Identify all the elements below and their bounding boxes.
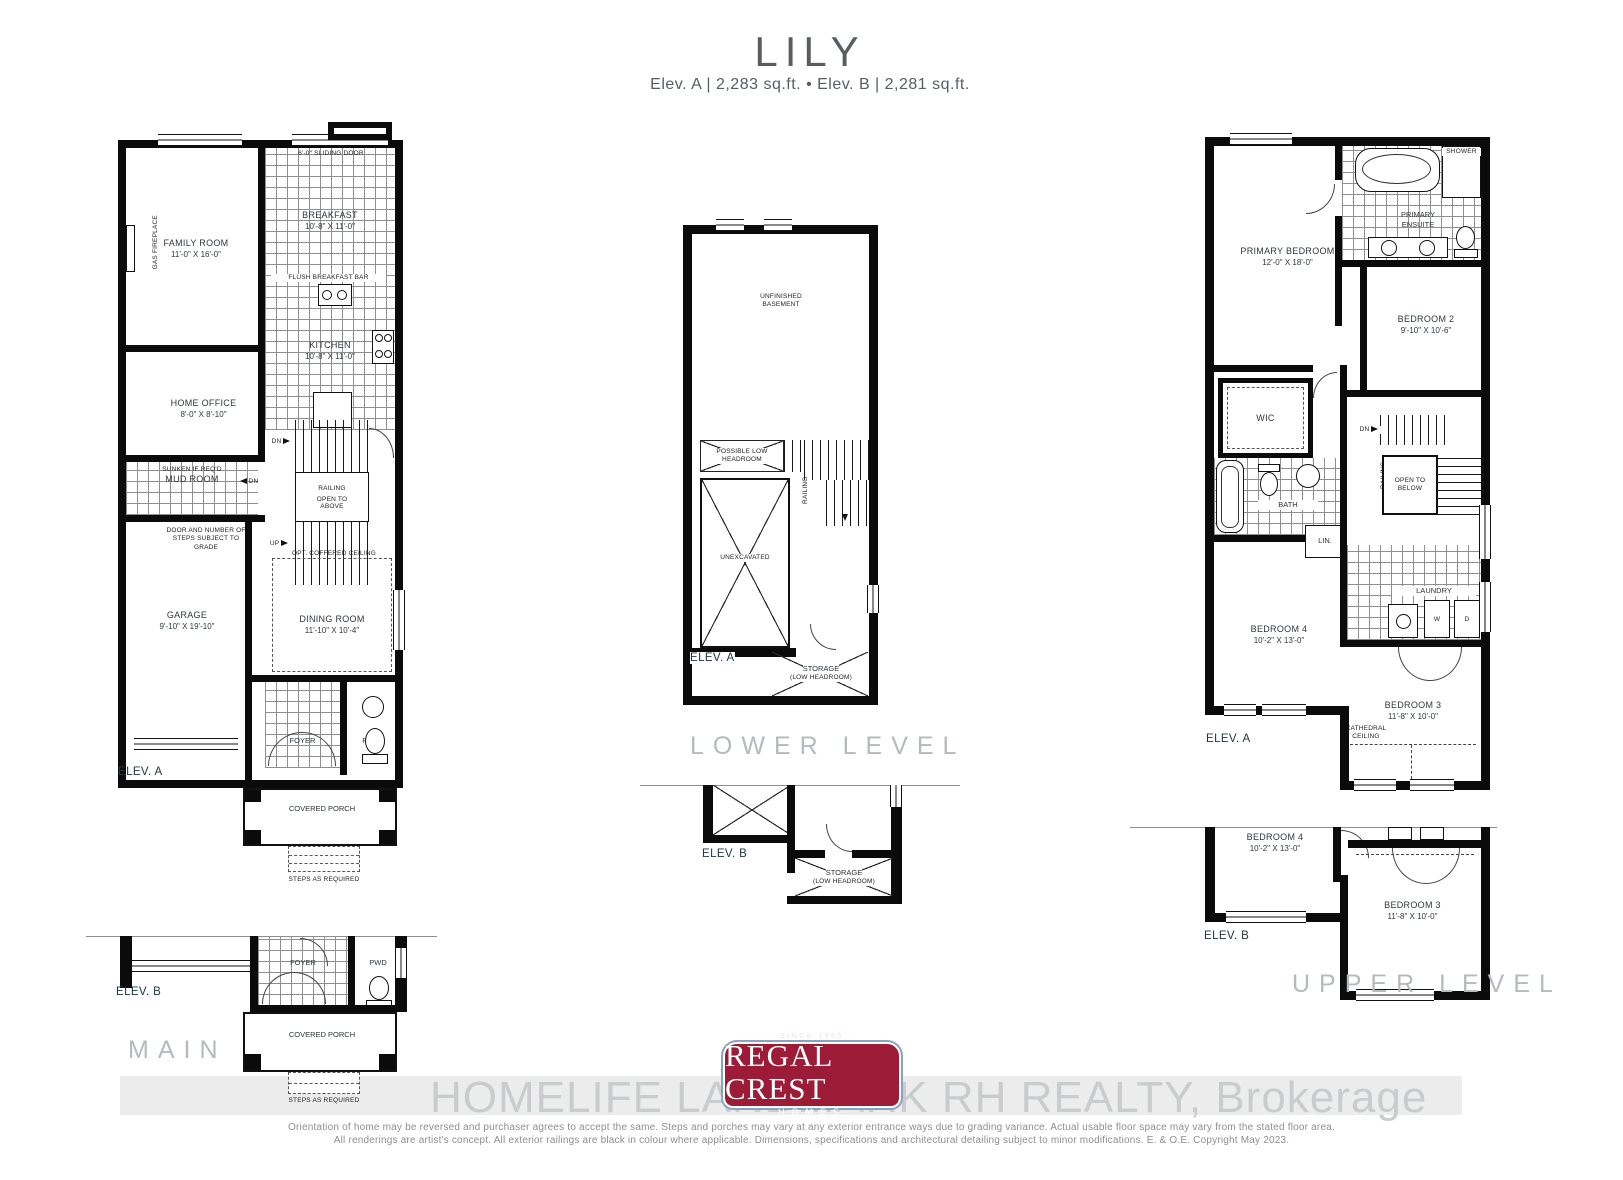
door-arc [826,824,852,852]
wall [1360,267,1367,390]
toilet-bowl [1456,226,1475,249]
disclaimer-line-1: Orientation of home may be reversed and … [0,1122,1623,1133]
window [395,948,407,978]
wall [348,936,355,1012]
stairs-flight [804,440,869,480]
steps-outline [288,1072,360,1094]
door-arc [1306,184,1335,214]
bedroom-3-label: BEDROOM 3 11'-8" X 10'-0" [1350,900,1475,922]
door-arc [1313,372,1337,398]
window [1479,505,1491,559]
bath-tub [1216,460,1244,533]
dryer: D [1454,600,1480,638]
dn-marker: DN [232,478,266,486]
garage-door [134,738,238,750]
garage-label: GARAGE 9'-10" X 19'-10" [131,610,243,632]
wall [258,352,265,462]
window [1479,582,1491,632]
porch-post [379,1054,395,1070]
steps-outline [288,846,360,872]
lower-level-title: LOWER LEVEL [690,732,965,761]
arrow-right-icon [283,438,290,444]
window [716,219,744,231]
toilet-tank [362,754,388,764]
wall [1335,146,1342,180]
logo-name-text: REGAL CREST [725,1040,899,1105]
wall [252,675,395,682]
steps-as-required-label: STEPS AS REQUIRED [284,876,364,884]
sink-basin [1381,240,1397,256]
garage-door [132,960,250,972]
door-arc [1398,647,1430,681]
door-arc [1392,848,1426,884]
window [1262,704,1306,716]
primary-bedroom-label: PRIMARY BEDROOM 12'-0" X 18'-0" [1226,246,1349,268]
pwd-label: PWD [358,958,398,968]
covered-porch-label: COVERED PORCH [282,804,362,814]
disclaimer-line-2: All renderings are artist's concept. All… [0,1135,1623,1146]
wall [126,515,265,522]
floorplan-page: { "header": { "title": "LILY", "subtitle… [0,0,1623,1180]
burner [384,350,392,358]
upper-level-plan: SHOWER PRIMARY ENSUITE PRIMARY BEDROOM 1… [1205,137,1490,790]
door-grade-note: DOOR AND NUMBER OF STEPS SUBJECT TO GRAD… [164,527,248,552]
wall [795,850,825,858]
wall [1342,260,1481,267]
door-arc [1426,848,1460,884]
covered-porch: COVERED PORCH [243,788,397,846]
window [393,590,405,650]
primary-ensuite-label: PRIMARY ENSUITE [1376,204,1460,236]
arrow-left-icon [240,478,247,484]
wall [703,835,795,843]
sink-basin [337,290,347,300]
elev-b-label: ELEV. B [116,986,161,998]
open-to-above-label: OPEN TO ABOVE [309,496,355,510]
window [158,134,242,146]
window [1230,133,1292,145]
double-vanity [1368,237,1448,258]
bath-label: BATH [1258,500,1318,510]
gas-fireplace [126,225,135,272]
open-to-below-label: OPEN TO BELOW [1384,457,1436,513]
washer: W [1424,600,1450,638]
door-arc [810,624,836,650]
linen-label: LIN. [1306,536,1344,546]
wall [1205,827,1215,922]
toilet-bowl [365,728,385,754]
foyer-label: FOYER [258,958,348,968]
window [1354,779,1396,791]
storage-label: STORAGE (LOW HEADROOM) [808,862,880,892]
unexcavated-label: UNEXCAVATED [710,554,780,562]
porch-post [379,830,395,844]
wall [1340,706,1349,790]
elev-b-label: ELEV. B [702,848,747,860]
wall [340,682,347,775]
toilet-tank [1454,249,1478,258]
porch-post [379,790,395,802]
tub-inner [1221,466,1239,528]
logo-homes-text: HOMES [778,1107,846,1117]
porch-post [245,1054,261,1070]
railing-label: RAILING [802,472,810,508]
sink-basin [1396,614,1411,629]
burner [375,350,383,358]
cathedral-dashed-line [1350,744,1476,745]
steps-as-required-label: STEPS AS REQUIRED [284,1097,364,1105]
wall [1214,365,1313,372]
bedroom-4-label: BEDROOM 4 10'-2" X 13'-0" [1215,832,1335,854]
arrow-right-icon [1371,426,1378,432]
pwd-sink [362,696,384,718]
arrow-down-icon [842,514,848,521]
unexcavated-partial [713,785,791,835]
laundry-label: LAUNDRY [1392,586,1476,596]
wall [1333,827,1341,882]
covered-porch: COVERED PORCH [243,1012,397,1072]
flush-breakfast-bar-label: FLUSH BREAKFAST BAR [271,274,386,282]
home-office-label: HOME OFFICE 8'-0" X 8'-10" [151,398,256,420]
laundry-sink [1388,604,1418,638]
railing-label: RAILING [318,485,345,492]
bath-sink [1296,464,1320,488]
ensuite-tub [1355,148,1440,192]
wall [787,785,795,873]
stairs-upper-flight [295,420,369,472]
wall [126,345,265,352]
arrow-right-icon [281,540,288,546]
wall [126,455,265,462]
kitchen-label: KITCHEN 10'-8" X 11'-0" [276,340,384,362]
window [890,785,902,807]
door-arc [369,428,394,458]
wall [250,936,258,1012]
wall [258,148,265,352]
wall [787,896,902,904]
burner [375,334,383,342]
unfinished-basement-label: UNFINISHED BASEMENT [722,292,840,313]
cathedral-dashed-line [1411,745,1412,779]
porch-post [245,830,261,844]
stair-railing-box: RAILING OPEN TO ABOVE [295,472,369,522]
tub-inner [1362,154,1431,184]
plan-notch-patch [1196,715,1344,791]
dryer-top [1420,827,1444,840]
door-arc [1430,647,1462,681]
window [1226,911,1306,923]
covered-porch-label: COVERED PORCH [282,1030,362,1040]
gas-fireplace-label: GAS FIREPLACE [152,214,160,270]
wall [120,936,132,988]
bay-window-glass [334,128,386,134]
dn-marker: DN [266,438,296,446]
breakfast-label: BREAKFAST 10'-8" X 11'-0" [276,210,384,232]
page-title: LILY [650,28,970,76]
sink-basin [1419,240,1435,256]
kitchen-sink [318,284,352,306]
possible-low-headroom-label: POSSIBLE LOW HEADROOM [704,442,780,470]
watermark-text: HOMELIFE LANDMARK RH REALTY, Brokerage [430,1073,1427,1123]
dining-room-label: DINING ROOM 11'-10" X 10'-4" [278,614,386,636]
sink-basin [322,290,332,300]
bedroom-2-label: BEDROOM 2 9'-10" X 10'-6" [1377,314,1475,336]
bath-toilet [1258,464,1280,498]
window [764,219,792,231]
wall [250,1005,407,1012]
step-line [289,855,359,856]
unexcavated-zone [700,478,790,648]
lower-level-plan: UNFINISHED BASEMENT POSSIBLE LOW HEADROO… [683,225,878,705]
wic-label: WIC [1223,413,1308,425]
wall [245,522,252,780]
window [1224,704,1256,716]
sliding-door-label: 6'-0" SLIDING DOOR [271,150,391,158]
stairs-flight [1438,455,1481,515]
toilet-tank [1258,464,1280,472]
wall [1340,640,1481,647]
washer-top [1388,827,1412,840]
wall [852,850,893,858]
elev-a-label: ELEV. A [1206,733,1251,745]
elev-a-label: ELEV. A [118,766,163,778]
dn-marker: DN [1354,426,1384,434]
linen-closet: LIN. [1305,525,1345,558]
storage-label: STORAGE (LOW HEADROOM) [786,658,856,688]
step-line [289,1083,359,1084]
regal-crest-logo: SINCE 1965 REGAL CREST HOMES [723,1042,901,1108]
pwd-toilet [362,728,388,766]
stove [372,330,394,364]
wall [1340,365,1347,647]
upper-level-title: UPPER LEVEL [1292,970,1562,999]
page-subtitle: Elev. A | 2,283 sq.ft. • Elev. B | 2,281… [560,76,1060,94]
porch-post [245,790,261,802]
toilet-bowl [369,976,389,1000]
wall [1348,840,1481,848]
cut-line [640,785,960,786]
bedroom-4-label: BEDROOM 4 10'-2" X 13'-0" [1219,624,1339,646]
window [1410,779,1454,791]
elev-b-label: ELEV. B [1204,930,1249,942]
window [867,585,879,613]
toilet-bowl [1260,472,1278,496]
wic: WIC [1218,378,1313,458]
bedroom-3-label: BEDROOM 3 11'-8" X 10'-0" [1354,700,1472,722]
open-to-below-box: OPEN TO BELOW [1382,455,1438,515]
up-marker: UP [264,540,294,548]
burner [384,334,392,342]
ensuite-toilet [1454,226,1478,260]
shower-label: SHOWER [1442,148,1481,156]
stairs [784,440,804,472]
step-line [289,863,359,864]
main-level-elev-a-plan: 6'-0" SLIDING DOOR FAMILY ROOM 11'-0" X … [118,140,403,788]
wall [1347,390,1481,397]
stairs-flight [1380,415,1445,445]
wall [1335,216,1342,326]
elev-a-label: ELEV. A [690,652,735,664]
